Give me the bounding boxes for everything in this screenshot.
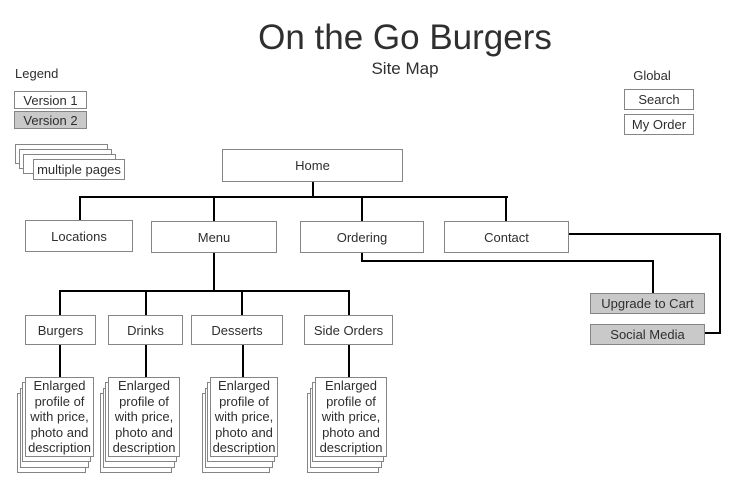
legend-title: Legend: [15, 66, 58, 81]
connector-side-orders-drop: [348, 290, 350, 316]
global-search-box: Search: [624, 89, 694, 110]
connector-ordering-drop: [361, 196, 363, 222]
sitemap-diagram: On the Go Burgers Site Map Legend Versio…: [0, 0, 733, 489]
legend-version1-swatch: Version 1: [14, 91, 87, 109]
legend-version2-swatch: Version 2: [14, 111, 87, 129]
page-subtitle: Site Map: [105, 59, 705, 79]
connector-ordering-rail: [361, 260, 654, 262]
legend-multiple-pages-label: multiple pages: [33, 159, 125, 180]
connector-burgers-drop: [59, 290, 61, 316]
stack-page-label: Enlarged profile of with price, photo an…: [210, 377, 278, 457]
connector-desserts-drop: [241, 290, 243, 316]
node-side-orders: Side Orders: [304, 315, 393, 345]
connector-contact-drop: [505, 196, 507, 222]
connector-menu-down: [213, 252, 215, 292]
node-contact: Contact: [444, 221, 569, 253]
node-home: Home: [222, 149, 403, 182]
stack-page-label: Enlarged profile of with price, photo an…: [25, 377, 94, 457]
connector-social-media-left: [704, 332, 721, 334]
connector-menu-drop: [213, 196, 215, 222]
connector-drinks-stack: [145, 344, 147, 378]
node-upgrade-to-cart: Upgrade to Cart: [590, 293, 705, 314]
connector-burgers-stack: [59, 344, 61, 378]
connector-locations-drop: [79, 196, 81, 222]
node-social-media: Social Media: [590, 324, 705, 345]
stack-page-label: Enlarged profile of with price, photo an…: [108, 377, 180, 457]
connector-contact-down: [719, 233, 721, 334]
node-burgers: Burgers: [25, 315, 96, 345]
connector-desserts-stack: [242, 344, 244, 378]
node-ordering: Ordering: [300, 221, 424, 253]
node-menu: Menu: [151, 221, 277, 253]
node-drinks: Drinks: [108, 315, 183, 345]
connector-upgrade-drop: [652, 260, 654, 293]
node-locations: Locations: [25, 220, 133, 252]
connector-side-orders-stack: [348, 344, 350, 378]
connector-level1-rail: [79, 196, 508, 198]
page-title: On the Go Burgers: [105, 17, 705, 59]
connector-contact-right: [568, 233, 721, 235]
global-title: Global: [617, 68, 687, 83]
node-desserts: Desserts: [191, 315, 283, 345]
connector-drinks-drop: [145, 290, 147, 316]
connector-level2-rail: [59, 290, 350, 292]
stack-page-label: Enlarged profile of with price, photo an…: [315, 377, 387, 457]
global-my-order-box: My Order: [624, 114, 694, 135]
